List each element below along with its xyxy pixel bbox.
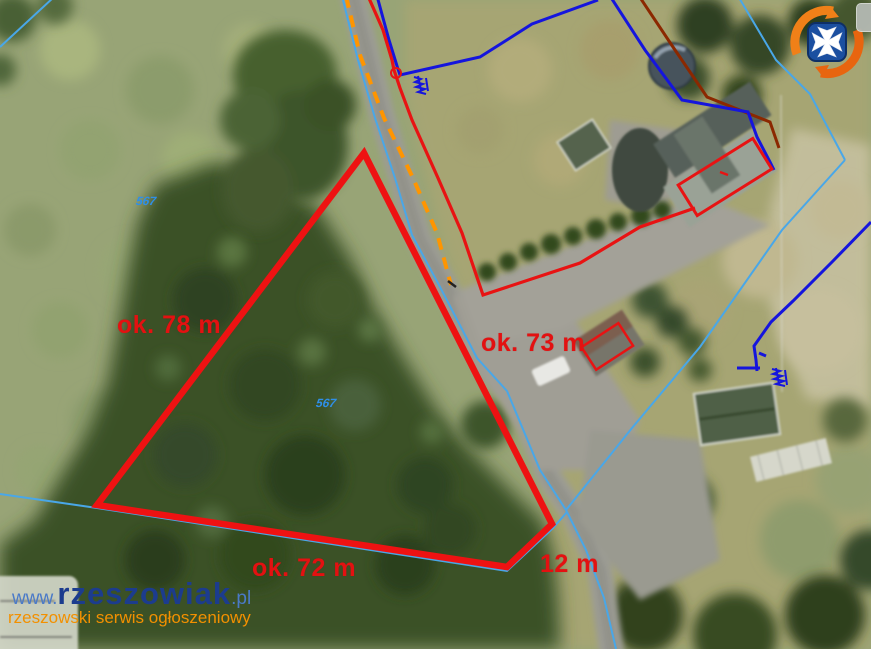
watermark-www: www. (12, 588, 57, 610)
parcel-number: 567 (135, 194, 157, 208)
utility-symbol-icon (772, 368, 787, 386)
red-dash (720, 172, 728, 175)
measurement-label-west: ok. 78 m (117, 311, 221, 340)
measurement-label-south: ok. 72 m (252, 554, 356, 583)
utility-symbol-icon (414, 76, 428, 94)
utility-symbols (414, 76, 787, 386)
cadastral-line-top-left (0, 0, 54, 47)
road-axis-orange-line (346, 0, 451, 285)
measurement-label-road: ok. 73 m (481, 329, 585, 358)
aerial-map: ok. 78 m ok. 73 m ok. 72 m 12 m 567 567 … (0, 0, 871, 649)
cadastral-line-road-west (342, 0, 566, 510)
blue-line-northeast (610, 0, 774, 170)
watermark-tagline: rzeszowski serwis ogłoszeniowy (8, 608, 251, 628)
watermark-tld: .pl (231, 588, 251, 610)
watermark: www.rzeszowiak.pl (12, 576, 251, 612)
house-annotation-rect-small (581, 323, 633, 370)
dark-red-boundary-line (639, 0, 779, 148)
watermark-name: rzeszowiak (57, 576, 231, 612)
corner-tab (856, 3, 871, 32)
cadastral-line-road-south (566, 510, 616, 649)
plot-boundary (97, 153, 552, 567)
blue-dash (759, 353, 766, 356)
neighbor-plot-outline (368, 0, 772, 370)
parcel-number: 567 (315, 396, 337, 410)
house-annotation-rect-large (678, 138, 772, 215)
measurement-label-southeast: 12 m (540, 550, 599, 579)
blue-line-north (377, 0, 598, 75)
cadastral-line-east-diagonal (566, 160, 845, 510)
